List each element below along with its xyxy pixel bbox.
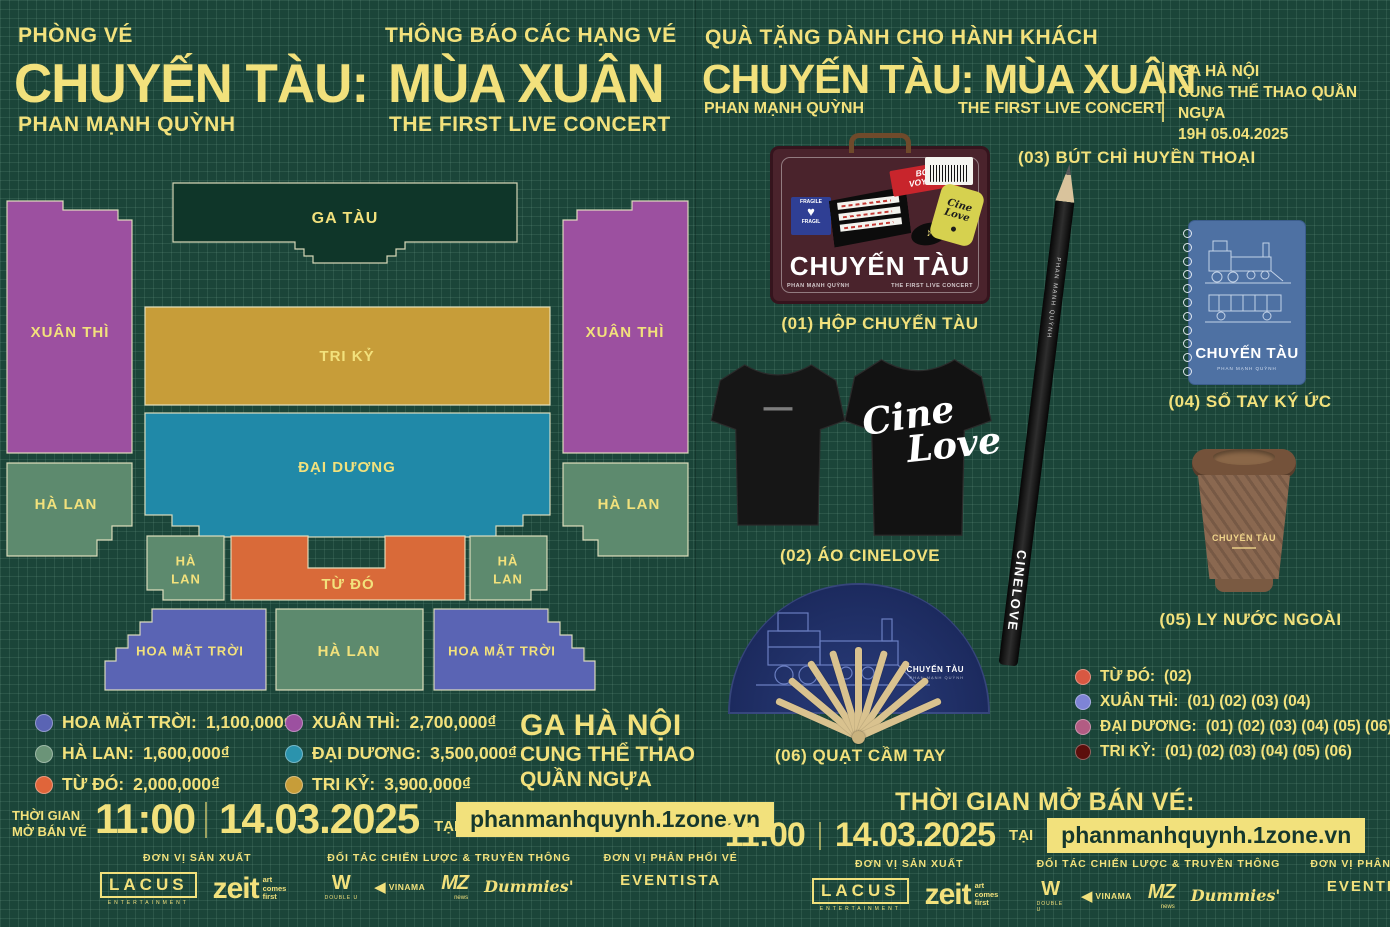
gift-dot-tu-do <box>1075 669 1091 685</box>
gift-dot-dai-duong <box>1075 719 1091 735</box>
legend-label: XUÂN THÌ: <box>312 712 400 733</box>
mz-logo: MZ news <box>1148 881 1175 910</box>
footer-distributor-group: ĐƠN VỊ PHÂN PHỐI VÉ EVENTISTA <box>604 852 738 889</box>
gift-cup: CHUYẾN TÀU <box>1192 444 1296 598</box>
legend-dot-tri-ky <box>285 776 303 794</box>
suitcase-title: CHUYẾN TÀU <box>773 251 987 282</box>
event-info-hall: CUNG THỂ THAO QUẦN NGỰA <box>1178 83 1390 125</box>
ticket-url-link[interactable]: phanmanhquynh.1zone.vn <box>1047 818 1365 853</box>
event-info-datetime: 19H 05.04.2025 <box>1178 125 1390 146</box>
venue-line: QUẦN NGỰA <box>520 768 695 793</box>
legend-row: ĐẠI DƯƠNG: 3,500,000₫ <box>285 743 517 764</box>
lacus-wordmark: LACUS <box>100 872 197 898</box>
dummies-logo: Dummies' <box>1191 886 1281 905</box>
zeit-wordmark: zeit <box>213 872 259 906</box>
pencil-brand-text: PHAN MẠNH QUỲNH <box>1045 257 1061 339</box>
pencil-logo-text: CINELOVE <box>1005 549 1030 633</box>
vinama-wordmark: VINAMA <box>1095 891 1132 901</box>
double-u-logo: W DOUBLE U <box>325 872 359 901</box>
suitcase-handle <box>849 133 911 153</box>
section-label: TRI KỶ <box>319 348 374 365</box>
partners-label: ĐỐI TÁC CHIẾN LƯỢC & TRUYỀN THÔNG <box>327 852 571 864</box>
legend-price: 1,600,000₫ <box>143 743 230 764</box>
left-title-a: CHUYẾN TÀU: <box>14 52 368 115</box>
gift-hand-fan: CHUYẾN TÀU PHAN MẠNH QUỲNH <box>728 583 990 748</box>
section-label: LAN <box>493 571 523 586</box>
double-u-sub: DOUBLE U <box>325 895 359 901</box>
section-label: XUÂN THÌ <box>586 323 665 341</box>
zeit-wordmark: zeit <box>925 878 971 912</box>
concert-poster: PHÒNG VÉ THÔNG BÁO CÁC HẠNG VÉ CHUYẾN TÀ… <box>0 0 1390 927</box>
caption-gift-06: (06) QUẠT CẦM TAY <box>768 746 953 766</box>
double-u-icon: W <box>1041 878 1060 901</box>
eventista-logo: EVENTISTA <box>1327 878 1390 895</box>
section-label: HÀ LAN <box>318 643 381 660</box>
fan-subtitle: PHAN MẠNH QUỲNH <box>909 675 964 680</box>
eventista-logo: EVENTISTA <box>620 872 721 889</box>
lacus-sub: ENTERTAINMENT <box>108 900 189 906</box>
cup-title: CHUYẾN TÀU <box>1196 533 1292 543</box>
vinama-wordmark: VINAMA <box>389 882 426 892</box>
gift-map-row: XUÂN THÌ: (01) (02) (03) (04) <box>1075 693 1390 711</box>
left-notice: THÔNG BÁO CÁC HẠNG VÉ <box>385 24 677 48</box>
legend-row: HOA MẶT TRỜI: 1,100,000₫ <box>35 712 293 733</box>
stage-label: GA TÀU <box>312 208 379 227</box>
mz-sub: news <box>1161 904 1175 910</box>
section-label: HOA MẶT TRỜI <box>448 643 556 658</box>
mz-logo: MZ news <box>441 872 468 901</box>
sale-time-label-line1: THỜI GIAN <box>12 808 87 824</box>
producer-label: ĐƠN VỊ SẢN XUẤT <box>855 858 964 870</box>
legend-row: XUÂN THÌ: 2,700,000₫ <box>285 712 517 733</box>
sale-date: 14.03.2025 <box>219 795 419 843</box>
notebook-title: CHUYẾN TÀU <box>1189 345 1305 362</box>
double-u-logo: W DOUBLE U <box>1037 878 1065 913</box>
lacus-logo: LACUS ENTERTAINMENT <box>812 878 909 912</box>
sale-time-label-line2: MỞ BÁN VÉ <box>12 824 87 840</box>
distributor-label: ĐƠN VỊ PHÂN PHỐI VÉ <box>1310 858 1390 870</box>
vinama-icon: ◀ <box>374 878 386 896</box>
price-legend-col1: HOA MẶT TRỜI: 1,100,000₫ HÀ LAN: 1,600,0… <box>35 712 293 795</box>
gift-allocation-list: TỪ ĐÓ: (02) XUÂN THÌ: (01) (02) (03) (04… <box>1075 668 1390 761</box>
gift-suitcase: FRAGILE ♥ FRAGIL BON VOYAGE ♪ Cine Love … <box>770 146 990 304</box>
section-label: LAN <box>171 571 201 586</box>
suitcase-subrow: PHAN MẠNH QUỲNH THE FIRST LIVE CONCERT <box>787 283 973 289</box>
section-label: HÀ <box>176 553 197 568</box>
legend-dot-hoa-mat-troi <box>35 714 53 732</box>
gift-map-row: TRI KỶ: (01) (02) (03) (04) (05) (06) <box>1075 743 1390 761</box>
footer-partners-group: ĐỐI TÁC CHIẾN LƯỢC & TRUYỀN THÔNG W DOUB… <box>1037 858 1281 913</box>
gift-notebook: CHUYẾN TÀU PHAN MẠNH QUỲNH <box>1188 220 1306 385</box>
lacus-logo: LACUS ENTERTAINMENT <box>100 872 197 906</box>
lacus-sub: ENTERTAINMENT <box>820 906 901 912</box>
pencil-body: PHAN MẠNH QUỲNH CINELOVE <box>999 201 1075 667</box>
gift-map-row: TỪ ĐÓ: (02) <box>1075 668 1390 686</box>
event-info: GA HÀ NỘI CUNG THỂ THAO QUẦN NGỰA 19H 05… <box>1178 62 1390 146</box>
legend-dot-dai-duong <box>285 745 303 763</box>
right-title: CHUYẾN TÀU: MÙA XUÂN <box>702 56 1195 103</box>
right-sale-heading: THỜI GIAN MỞ BÁN VÉ: <box>700 788 1390 817</box>
tshirt-back: Cine Love <box>834 350 1002 545</box>
legend-price: 1,100,000₫ <box>206 712 293 733</box>
legend-label: TRI KỶ: <box>312 774 375 795</box>
legend-label: ĐẠI DƯƠNG: <box>312 743 421 764</box>
train-sketch <box>1203 233 1295 333</box>
venue-left: GA HÀ NỘI CUNG THỂ THAO QUẦN NGỰA <box>520 708 695 793</box>
section-label: XUÂN THÌ <box>31 323 110 341</box>
heart-icon: ♥ <box>791 205 831 219</box>
sale-time: 11:00 <box>725 816 805 855</box>
zeit-logo: zeit art comes first <box>925 878 1007 912</box>
legend-label: HÀ LAN: <box>62 743 134 764</box>
venue-line: CUNG THỂ THAO <box>520 743 695 768</box>
caption-gift-04: (04) SỔ TAY KÝ ỨC <box>1160 392 1340 412</box>
pencil-tip <box>1055 163 1078 203</box>
seating-map: GA TÀU XUÂN THÌ XUÂN THÌ HÀ LAN HÀ LAN T… <box>0 180 695 695</box>
section-label: HÀ <box>498 553 519 568</box>
right-subtitle: THE FIRST LIVE CONCERT <box>958 100 1164 118</box>
chest-print <box>764 407 793 410</box>
left-kicker: PHÒNG VÉ <box>18 24 133 48</box>
legend-price: 3,500,000₫ <box>430 743 517 764</box>
price-legend-col2: XUÂN THÌ: 2,700,000₫ ĐẠI DƯƠNG: 3,500,00… <box>285 712 517 795</box>
right-artist: PHAN MẠNH QUỲNH <box>704 100 864 118</box>
legend-dot-xuan-thi <box>285 714 303 732</box>
legend-row: HÀ LAN: 1,600,000₫ <box>35 743 293 764</box>
tshirt-back-print-2: Love <box>904 418 1002 471</box>
footer-partners-group: ĐỐI TÁC CHIẾN LƯỢC & TRUYỀN THÔNG W DOUB… <box>325 852 574 901</box>
legend-price: 3,900,000₫ <box>384 774 471 795</box>
legend-dot-ha-lan <box>35 745 53 763</box>
section-label: HOA MẶT TRỜI <box>136 643 244 658</box>
tshirt-front <box>704 356 852 534</box>
event-info-venue: GA HÀ NỘI <box>1178 62 1390 83</box>
footer-producer-group: ĐƠN VỊ SẢN XUẤT LACUS ENTERTAINMENT zeit… <box>100 852 295 906</box>
zeit-sub: art comes first <box>975 882 1007 908</box>
sale-divider <box>205 802 207 838</box>
fragile-text-2: FRAGIL <box>791 219 831 225</box>
cup-lid <box>1192 449 1296 479</box>
mz-wordmark: MZ <box>441 872 468 895</box>
footer-left: ĐƠN VỊ SẢN XUẤT LACUS ENTERTAINMENT zeit… <box>100 852 738 906</box>
mz-wordmark: MZ <box>1148 881 1175 904</box>
left-title-b: MÙA XUÂN <box>388 52 664 115</box>
gift-dot-tri-ky <box>1075 744 1091 760</box>
producer-label: ĐƠN VỊ SẢN XUẤT <box>143 852 252 864</box>
right-sale-line: 11:00 14.03.2025 TẠI phanmanhquynh.1zone… <box>700 816 1390 855</box>
sale-time-label: THỜI GIAN MỞ BÁN VÉ <box>12 808 87 839</box>
tag-hole <box>950 226 956 232</box>
zeit-logo: zeit art comes first <box>213 872 295 906</box>
left-artist: PHAN MẠNH QUỲNH <box>18 113 236 137</box>
caption-gift-01: (01) HỘP CHUYẾN TÀU <box>770 314 990 334</box>
barcode-sticker <box>925 157 973 185</box>
section-label: HÀ LAN <box>598 496 661 513</box>
legend-price: 2,000,000₫ <box>133 774 220 795</box>
caption-gift-02: (02) ÁO CINELOVE <box>770 546 950 566</box>
footer-right: ĐƠN VỊ SẢN XUẤT LACUS ENTERTAINMENT zeit… <box>812 858 1390 913</box>
mz-sub: news <box>454 895 468 901</box>
sale-at-label: TẠI <box>434 818 458 835</box>
footer-distributor-group: ĐƠN VỊ PHÂN PHỐI VÉ EVENTISTA <box>1310 858 1390 895</box>
cup-base <box>1215 579 1273 592</box>
vinama-logo: ◀ VINAMA <box>1081 887 1132 905</box>
legend-row: TRI KỶ: 3,900,000₫ <box>285 774 517 795</box>
vinama-logo: ◀ VINAMA <box>374 878 425 896</box>
double-u-sub: DOUBLE U <box>1037 901 1065 913</box>
gift-map-row: ĐẠI DƯƠNG: (01) (02) (03) (04) (05) (06) <box>1075 718 1390 736</box>
section-label: TỪ ĐÓ <box>321 575 374 593</box>
lacus-wordmark: LACUS <box>812 878 909 904</box>
legend-row: TỪ ĐÓ: 2,000,000₫ <box>35 774 293 795</box>
legend-label: TỪ ĐÓ: <box>62 774 124 795</box>
poster-seam-divider <box>695 0 696 927</box>
zeit-sub: art comes first <box>263 876 295 902</box>
sale-time: 11:00 <box>95 795 195 843</box>
sale-divider <box>819 822 821 850</box>
fan-pivot <box>852 731 865 744</box>
legend-dot-tu-do <box>35 776 53 794</box>
section-label: HÀ LAN <box>35 496 98 513</box>
partners-label: ĐỐI TÁC CHIẾN LƯỢC & TRUYỀN THÔNG <box>1037 858 1281 870</box>
gift-pencil: PHAN MẠNH QUỲNH CINELOVE <box>1012 160 1132 680</box>
footer-producer-group: ĐƠN VỊ SẢN XUẤT LACUS ENTERTAINMENT zeit… <box>812 858 1007 912</box>
caption-gift-05: (05) LY NƯỚC NGOÀI <box>1158 610 1343 630</box>
double-u-icon: W <box>332 872 351 895</box>
legend-price: 2,700,000₫ <box>409 712 496 733</box>
sale-at-label: TẠI <box>1009 827 1033 844</box>
header-divider <box>1162 62 1164 122</box>
sale-date: 14.03.2025 <box>835 816 995 855</box>
vinama-icon: ◀ <box>1081 887 1093 905</box>
left-subtitle: THE FIRST LIVE CONCERT <box>389 113 671 137</box>
right-kicker: QUÀ TẶNG DÀNH CHO HÀNH KHÁCH <box>705 26 1098 50</box>
notebook-subtitle: PHAN MẠNH QUỲNH <box>1189 366 1305 371</box>
gift-dot-xuan-thi <box>1075 694 1091 710</box>
venue-line: GA HÀ NỘI <box>520 708 695 743</box>
section-label: ĐẠI DƯƠNG <box>298 459 396 476</box>
cup-body: CHUYẾN TÀU <box>1196 475 1292 579</box>
fragile-sticker: FRAGILE ♥ FRAGIL <box>791 197 831 235</box>
fan-title: CHUYẾN TÀU <box>907 665 964 674</box>
dummies-logo: Dummies' <box>484 877 574 896</box>
legend-label: HOA MẶT TRỜI: <box>62 712 197 733</box>
